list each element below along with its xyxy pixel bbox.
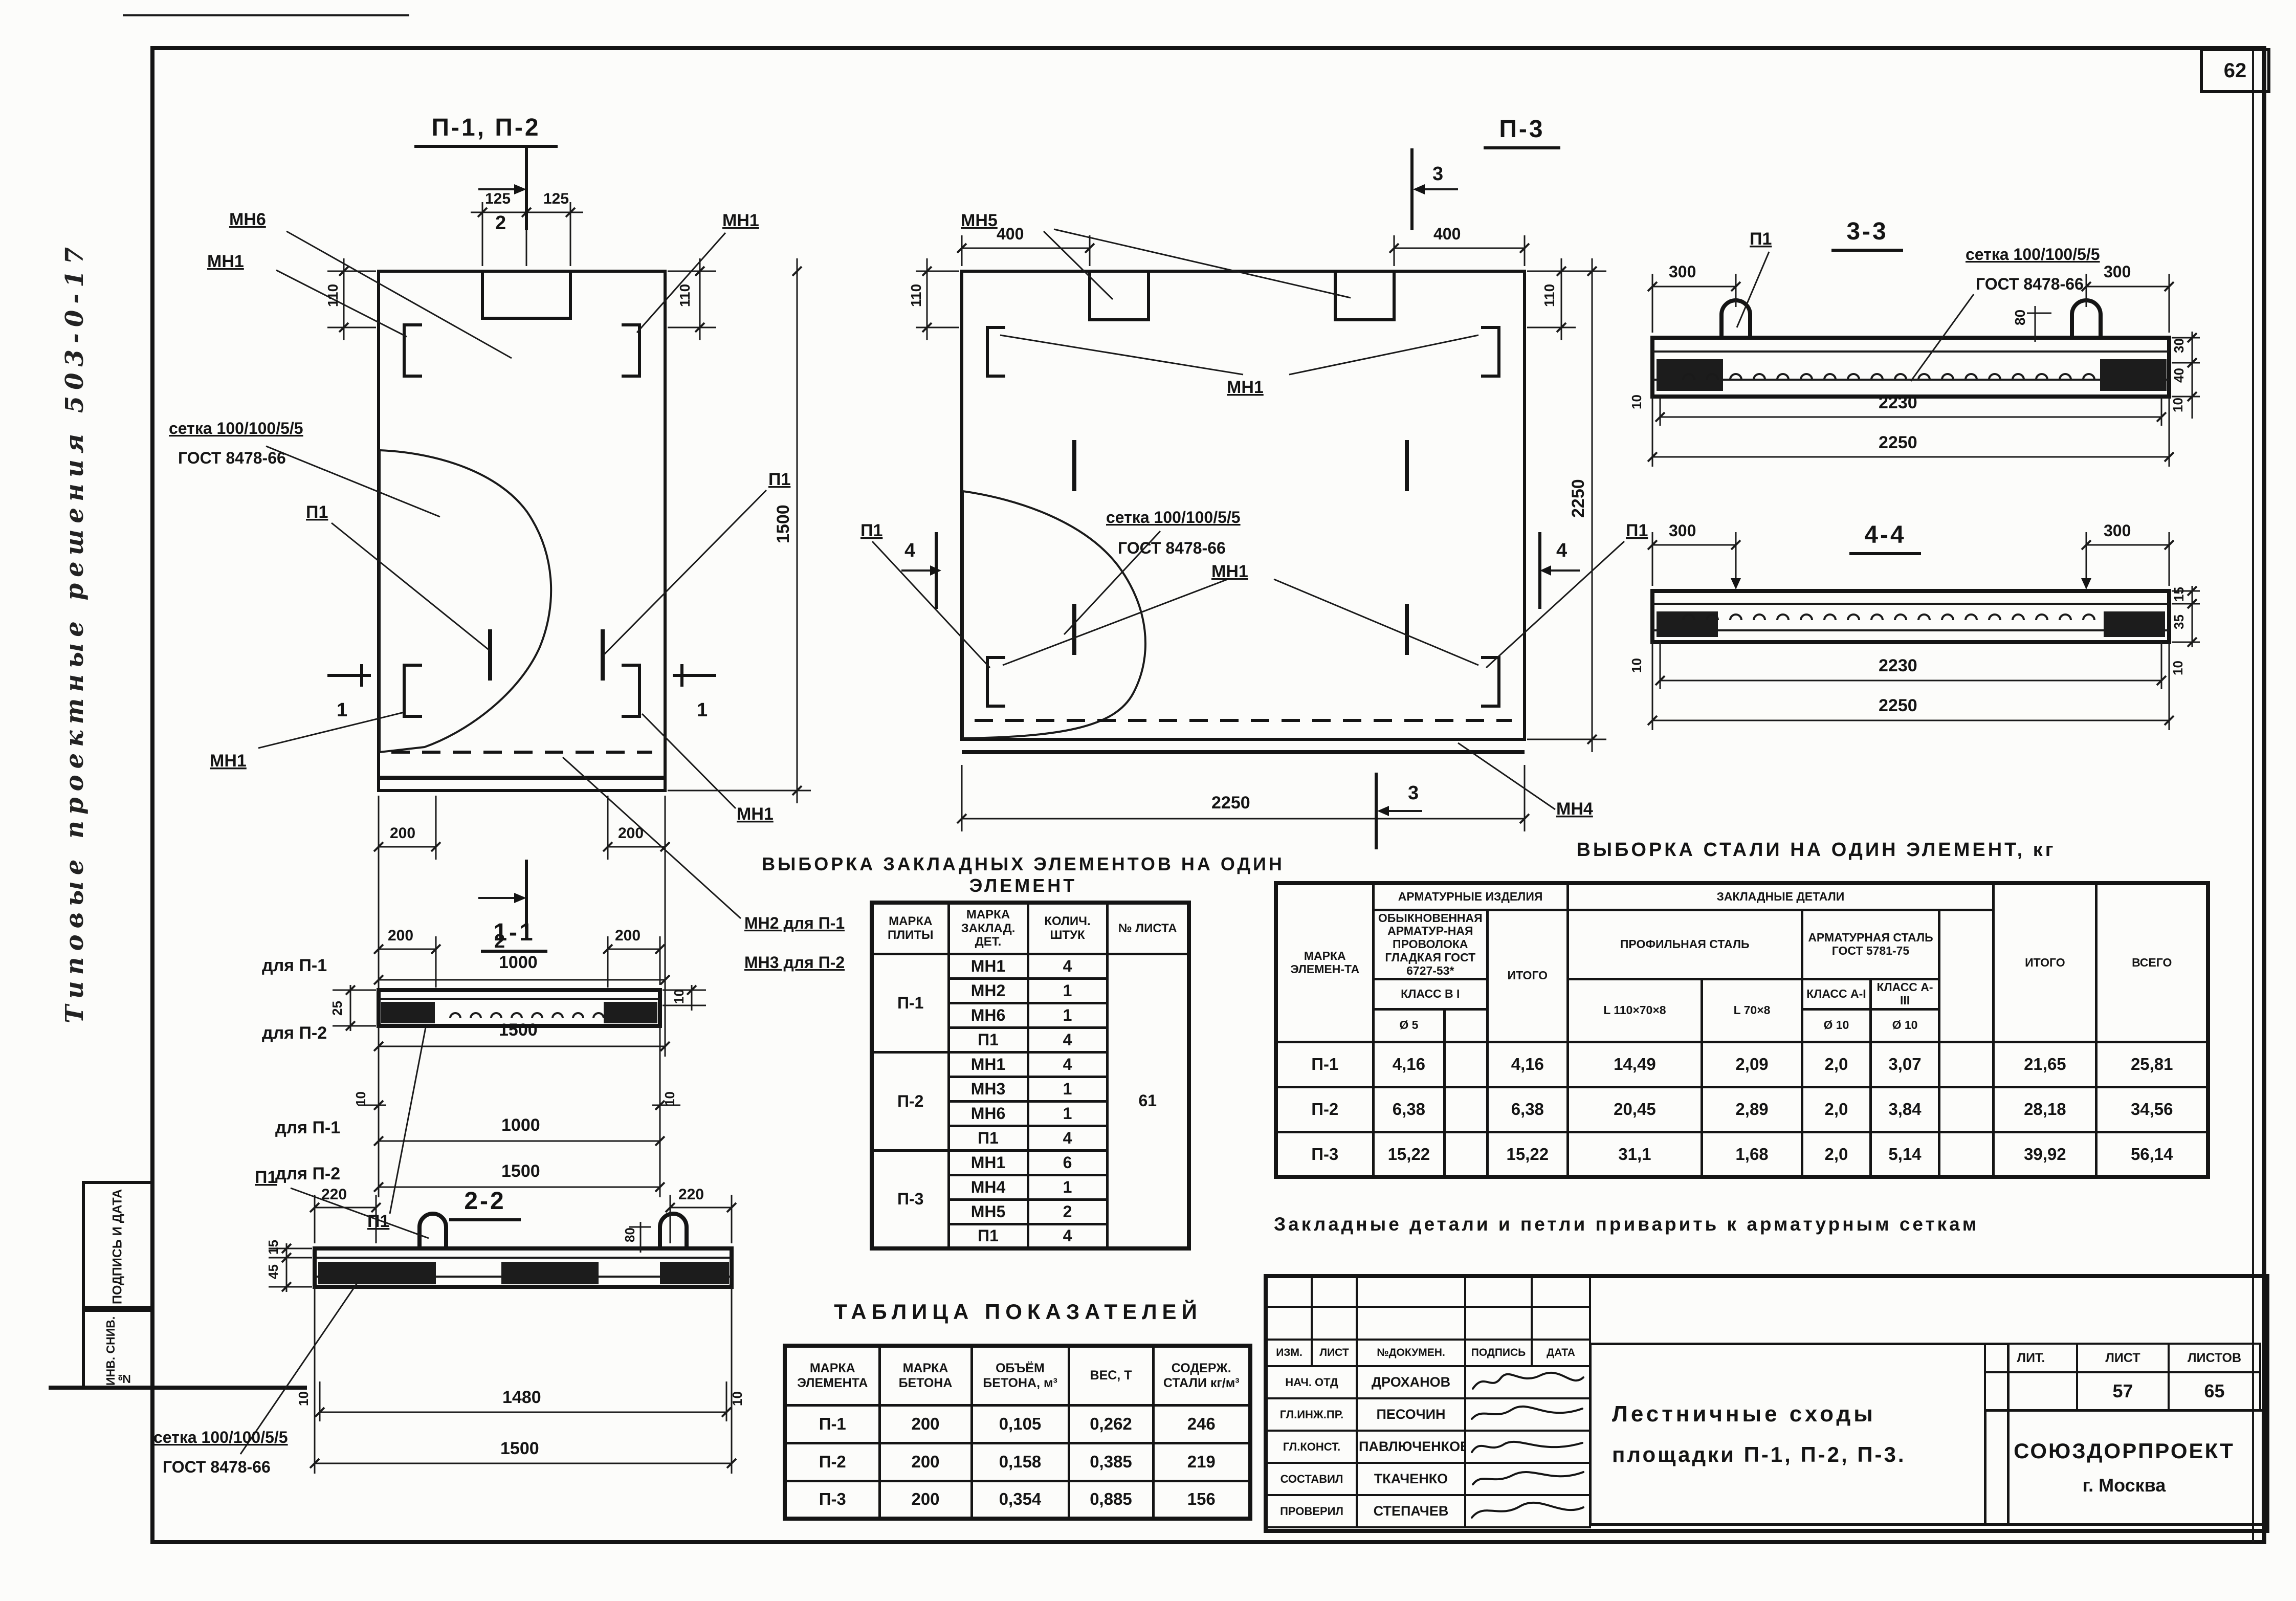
signature: [1469, 1400, 1586, 1426]
svg-text:ГОСТ 8478-66: ГОСТ 8478-66: [178, 449, 286, 467]
sig-role: НАЧ. ОТД: [1267, 1366, 1357, 1398]
svg-text:П1: П1: [768, 470, 790, 489]
svg-text:1500: 1500: [774, 505, 793, 543]
signature: [1469, 1433, 1586, 1458]
svg-text:10: 10: [671, 989, 687, 1004]
steel-h-itogo2: ИТОГО: [1994, 883, 2096, 1042]
pokaz-cell: 0,158: [972, 1443, 1069, 1481]
plan-p3: 400 400 3 3 4 4 110 110 2250 2250 МН5 МН…: [860, 148, 1648, 849]
svg-text:300: 300: [2104, 262, 2131, 281]
steel-cell: 31,1: [1568, 1132, 1702, 1177]
svg-text:10: 10: [2170, 398, 2185, 412]
svg-text:40: 40: [2171, 368, 2187, 383]
page-number-box: 62: [2200, 48, 2270, 93]
pokaz-cell: 0,385: [1069, 1443, 1153, 1481]
zakl-cell: П1: [948, 1027, 1028, 1052]
zakl-cell: 1: [1028, 1175, 1107, 1199]
margin-box-inventory: ИНВ. СНИВ. №: [82, 1306, 153, 1389]
svg-text:1: 1: [697, 699, 708, 721]
pokaz-table: МАРКА ЭЛЕМЕНТА МАРКА БЕТОНА ОБЪЁМ БЕТОНА…: [783, 1344, 1252, 1521]
svg-text:МН2 для П-1: МН2 для П-1: [744, 914, 845, 932]
steel-h-d10a: Ø 10: [1802, 1009, 1870, 1042]
sig-name: ПЕСОЧИН: [1357, 1398, 1465, 1431]
title-plan-p3: П-3: [1484, 115, 1560, 149]
svg-text:для П-1: для П-1: [262, 956, 327, 975]
revision-table: ИЗМ. ЛИСТ №ДОКУМЕН. ПОДПИСЬ ДАТА НАЧ. ОТ…: [1266, 1276, 1591, 1528]
svg-text:МН5: МН5: [961, 211, 998, 230]
pokaz-cell: П-1: [785, 1405, 879, 1443]
svg-text:ГОСТ 8478-66: ГОСТ 8478-66: [163, 1458, 271, 1476]
signature-cell: [1465, 1431, 1590, 1463]
lit-table: ЛИТ. ЛИСТ ЛИСТОВ 57 65: [1984, 1343, 2261, 1411]
svg-text:МН1: МН1: [737, 804, 774, 824]
zakl-cell: МН3: [948, 1077, 1028, 1101]
signature-cell: [1465, 1366, 1590, 1398]
steel-row: П-14,164,1614,492,092,03,0721,6525,81: [1276, 1042, 2208, 1087]
rev-header: ДАТА: [1532, 1340, 1590, 1366]
steel-h-wire: ОБЫКНОВЕННАЯ АРМАТУР-НАЯ ПРОВОЛОКА ГЛАДК…: [1373, 910, 1488, 979]
svg-text:ГОСТ 8478-66: ГОСТ 8478-66: [1976, 275, 2084, 293]
steel-cell: 56,14: [2096, 1132, 2208, 1177]
svg-text:15: 15: [2171, 587, 2187, 602]
svg-text:МН1: МН1: [1211, 562, 1248, 581]
steel-h-L1: L 110×70×8: [1568, 979, 1702, 1042]
steel-cell: 2,0: [1802, 1132, 1870, 1177]
svg-text:П1: П1: [1750, 229, 1772, 249]
zakl-cell: МН4: [948, 1175, 1028, 1199]
steel-cell: 6,38: [1373, 1087, 1445, 1132]
margin-box-inventory-label: ИНВ. СНИВ. №: [85, 1309, 150, 1386]
organization-name: СОЮЗДОРПРОЕКТ: [2014, 1439, 2235, 1463]
steel-cell: 39,92: [1994, 1132, 2096, 1177]
pokaz-cell: 0,105: [972, 1405, 1069, 1443]
pokaz-header: МАРКА БЕТОНА: [879, 1346, 972, 1405]
steel-row: П-315,2215,2231,11,682,05,1439,9256,14: [1276, 1132, 2208, 1177]
svg-text:4: 4: [1556, 540, 1567, 561]
svg-text:П1: П1: [1626, 521, 1648, 540]
svg-text:10: 10: [2170, 661, 2185, 675]
pokaz-row: П-12000,1050,262246: [785, 1405, 1250, 1443]
title-section-3-3: 3-3: [1831, 217, 1903, 252]
steel-cell: 21,65: [1994, 1042, 2096, 1087]
zakl-mark: П-3: [872, 1150, 948, 1248]
steel-h-itogo1: ИТОГО: [1488, 910, 1568, 1042]
zakl-cell: МН1: [948, 954, 1028, 978]
steel-cell: 2,09: [1702, 1042, 1802, 1087]
svg-text:1480: 1480: [502, 1388, 541, 1407]
svg-text:П1: П1: [860, 521, 882, 540]
pokaz-cell: 0,354: [972, 1481, 1069, 1519]
zakl-cell: 4: [1028, 1126, 1107, 1150]
svg-text:10: 10: [662, 1091, 677, 1106]
pokaz-cell: 219: [1153, 1443, 1250, 1481]
lit-label: ЛИТ.: [1985, 1344, 2077, 1372]
zakl-cell: 4: [1028, 1027, 1107, 1052]
zakl-cell: 6: [1028, 1150, 1107, 1175]
listov-label: ЛИСТОВ: [2169, 1344, 2260, 1372]
listov-value: 65: [2169, 1372, 2260, 1410]
svg-text:15: 15: [266, 1240, 281, 1255]
svg-text:200: 200: [388, 927, 413, 944]
pokaz-cell: 246: [1153, 1405, 1250, 1443]
margin-box-signature-label: ПОДПИСЬ И ДАТА: [85, 1184, 150, 1309]
zakl-h-det: МАРКА ЗАКЛАД. ДЕТ.: [948, 903, 1028, 954]
zakl-cell: П1: [948, 1126, 1028, 1150]
title-section-2-2: 2-2: [449, 1187, 521, 1221]
svg-text:200: 200: [615, 927, 641, 944]
svg-text:МН6: МН6: [229, 210, 266, 229]
svg-text:300: 300: [2104, 521, 2131, 540]
svg-text:П1: П1: [255, 1168, 277, 1187]
sig-role: ГЛ.ИНЖ.ПР.: [1267, 1398, 1357, 1431]
pokaz-header: СОДЕРЖ. СТАЛИ кг/м³: [1153, 1346, 1250, 1405]
zakl-h-sheet: № ЛИСТА: [1107, 903, 1189, 954]
zakl-cell: МН6: [948, 1003, 1028, 1027]
sig-name: СТЕПАЧЕВ: [1357, 1495, 1465, 1527]
svg-text:2230: 2230: [1879, 393, 1917, 412]
svg-text:45: 45: [266, 1264, 281, 1279]
svg-text:400: 400: [1433, 225, 1461, 243]
drawing-sheet: 125 125 2 МН6 МН1 МН1 110 110 сетка 100/…: [0, 0, 2296, 1601]
svg-text:1000: 1000: [501, 1115, 540, 1135]
pokaz-cell: 200: [879, 1405, 972, 1443]
steel-cell: П-2: [1276, 1087, 1373, 1132]
svg-text:125: 125: [485, 190, 511, 207]
loop-ticks: [490, 629, 603, 681]
svg-text:30: 30: [2171, 338, 2187, 353]
svg-text:МН4: МН4: [1556, 799, 1593, 819]
steel-cell: 5,14: [1870, 1132, 1939, 1177]
steel-cell: [1939, 1042, 1994, 1087]
svg-text:110: 110: [1541, 284, 1557, 307]
zakl-cell: МН6: [948, 1101, 1028, 1126]
title-section-1-1: 1-1: [481, 918, 547, 953]
title-block: ИЗМ. ЛИСТ №ДОКУМЕН. ПОДПИСЬ ДАТА НАЧ. ОТ…: [1264, 1274, 2269, 1533]
pokaz-cell: 200: [879, 1443, 972, 1481]
svg-text:П1: П1: [367, 1212, 389, 1231]
steel-table: МАРКА ЭЛЕМЕН-ТА АРМАТУРНЫЕ ИЗДЕЛИЯ ЗАКЛА…: [1274, 881, 2210, 1179]
svg-text:2250: 2250: [1211, 793, 1250, 813]
svg-text:10: 10: [730, 1391, 745, 1406]
steel-cell: 2,0: [1802, 1042, 1870, 1087]
steel-cell: П-1: [1276, 1042, 1373, 1087]
svg-text:400: 400: [997, 225, 1024, 243]
zakl-cell: 2: [1028, 1199, 1107, 1224]
zakl-cell: 4: [1028, 1052, 1107, 1077]
zakl-cell: МН5: [948, 1199, 1028, 1224]
svg-text:2230: 2230: [1879, 656, 1917, 675]
zakl-cell: МН2: [948, 978, 1028, 1003]
svg-text:125: 125: [543, 190, 569, 207]
zakl-cell: 4: [1028, 1224, 1107, 1248]
svg-text:2250: 2250: [1569, 479, 1588, 518]
svg-text:1: 1: [337, 699, 347, 721]
svg-text:300: 300: [1669, 262, 1696, 281]
steel-cell: [1445, 1087, 1488, 1132]
steel-h-L2: L 70×8: [1702, 979, 1802, 1042]
pokaz-cell: П-3: [785, 1481, 879, 1519]
steel-h-d10b: Ø 10: [1870, 1009, 1939, 1042]
sig-name: ДРОХАНОВ: [1357, 1366, 1465, 1398]
steel-cell: 4,16: [1373, 1042, 1445, 1087]
steel-h-zakl: ЗАКЛАДНЫЕ ДЕТАЛИ: [1568, 883, 1994, 910]
title-plan-p1-p2: П-1, П-2: [414, 114, 558, 148]
doc-title-line2: площадки П-1, П-2, П-3.: [1612, 1442, 2007, 1467]
steel-cell: [1939, 1132, 1994, 1177]
svg-text:300: 300: [1669, 521, 1696, 540]
zakl-sheet-no: 61: [1107, 954, 1189, 1248]
organization-city: г. Москва: [2083, 1475, 2166, 1496]
organization-cell: СОЮЗДОРПРОЕКТ г. Москва: [1984, 1409, 2264, 1526]
svg-text:25: 25: [329, 1001, 345, 1016]
section-1-1: 200 200 25 10 10 10 для П-1 1000 для П-2…: [275, 927, 706, 1231]
margin-handwritten-note: Типовые проектные решения 503-0-17: [60, 102, 89, 1023]
svg-text:220: 220: [678, 1186, 704, 1203]
svg-text:200: 200: [390, 825, 415, 842]
list-label: ЛИСТ: [2077, 1344, 2169, 1372]
svg-text:200: 200: [618, 825, 644, 842]
list-value: 57: [2077, 1372, 2169, 1410]
steel-h-armstal: АРМАТУРНАЯ СТАЛЬ ГОСТ 5781-75: [1802, 910, 1939, 979]
steel-cell: 3,07: [1870, 1042, 1939, 1087]
zakl-h-mark: МАРКА ПЛИТЫ: [872, 903, 948, 954]
pokaz-header: МАРКА ЭЛЕМЕНТА: [785, 1346, 879, 1405]
zakl-cell: 1: [1028, 1101, 1107, 1126]
steel-cell: 34,56: [2096, 1087, 2208, 1132]
svg-text:для П-1: для П-1: [275, 1118, 340, 1137]
pokaz-cell: П-2: [785, 1443, 879, 1481]
steel-h-vsego: ВСЕГО: [2096, 883, 2208, 1042]
zakl-cell: 1: [1028, 1003, 1107, 1027]
zakl-cell: П1: [948, 1224, 1028, 1248]
steel-cell: 4,16: [1488, 1042, 1568, 1087]
zakl-cell: 1: [1028, 1077, 1107, 1101]
svg-text:3: 3: [1408, 782, 1419, 804]
steel-cell: 28,18: [1994, 1087, 2096, 1132]
svg-text:для П-2: для П-2: [262, 1023, 327, 1043]
pokaz-header: ОБЪЁМ БЕТОНА, м³: [972, 1346, 1069, 1405]
svg-text:1000: 1000: [499, 953, 538, 972]
steel-cell: 14,49: [1568, 1042, 1702, 1087]
steel-cell: [1445, 1042, 1488, 1087]
svg-text:1500: 1500: [501, 1161, 540, 1181]
sig-name: ТКАЧЕНКО: [1357, 1463, 1465, 1495]
svg-text:10: 10: [296, 1391, 311, 1406]
lit-value: [1985, 1372, 2077, 1410]
svg-text:1500: 1500: [499, 1020, 538, 1040]
svg-text:220: 220: [321, 1186, 347, 1203]
steel-h-classB: КЛАСС В I: [1373, 979, 1488, 1010]
section-3-3: 300 300 80 30 40 10 10 2230 2250 П1 сетк…: [1629, 229, 2200, 467]
pokaz-header: ВЕС, Т: [1069, 1346, 1153, 1405]
zakl-table: МАРКА ПЛИТЫ МАРКА ЗАКЛАД. ДЕТ. КОЛИЧ. ШТ…: [870, 901, 1191, 1251]
steel-cell: 1,68: [1702, 1132, 1802, 1177]
svg-text:МН1: МН1: [207, 252, 244, 271]
svg-text:10: 10: [353, 1091, 368, 1106]
steel-h-arm: АРМАТУРНЫЕ ИЗДЕЛИЯ: [1373, 883, 1568, 910]
svg-text:для П-2: для П-2: [275, 1164, 340, 1183]
rev-header: №ДОКУМЕН.: [1357, 1340, 1465, 1366]
svg-text:сетка 100/100/5/5: сетка 100/100/5/5: [1106, 508, 1241, 527]
sig-role: ГЛ.КОНСТ.: [1267, 1431, 1357, 1463]
svg-text:110: 110: [325, 284, 341, 307]
signature: [1469, 1465, 1586, 1490]
doc-title-line1: Лестничные сходы: [1612, 1401, 2007, 1427]
doc-title-cell: Лестничные сходы площадки П-1, П-2, П-3.: [1589, 1343, 2010, 1526]
steel-cell: [1445, 1132, 1488, 1177]
zakl-h-qty: КОЛИЧ. ШТУК: [1028, 903, 1107, 954]
svg-text:80: 80: [622, 1227, 637, 1242]
svg-text:сетка 100/100/5/5: сетка 100/100/5/5: [1966, 245, 2100, 264]
signature: [1469, 1368, 1586, 1394]
svg-text:МН3 для П-2: МН3 для П-2: [744, 953, 845, 972]
steel-cell: 15,22: [1488, 1132, 1568, 1177]
steel-h-blank: [1939, 910, 1994, 1042]
pokaz-table-title: ТАБЛИЦА ПОКАЗАТЕЛЕЙ: [788, 1300, 1248, 1324]
zakl-cell: МН1: [948, 1150, 1028, 1175]
steel-h-classA1: КЛАСС А-I: [1802, 979, 1870, 1010]
steel-h-d5: Ø 5: [1373, 1009, 1445, 1042]
rev-header: ПОДПИСЬ: [1465, 1340, 1532, 1366]
steel-cell: 2,89: [1702, 1087, 1802, 1132]
pokaz-cell: 0,262: [1069, 1405, 1153, 1443]
rev-header: ИЗМ.: [1267, 1340, 1312, 1366]
svg-text:10: 10: [1629, 658, 1644, 673]
svg-text:3: 3: [1432, 163, 1443, 185]
svg-text:МН1: МН1: [210, 751, 247, 771]
steel-h-mark: МАРКА ЭЛЕМЕН-ТА: [1276, 883, 1373, 1042]
margin-box-signature: ПОДПИСЬ И ДАТА: [82, 1181, 153, 1312]
steel-h-prof: ПРОФИЛЬНАЯ СТАЛЬ: [1568, 910, 1802, 979]
svg-text:35: 35: [2171, 615, 2187, 629]
signature: [1469, 1497, 1586, 1523]
zakl-mark: П-1: [872, 954, 948, 1052]
zakl-cell: 1: [1028, 978, 1107, 1003]
title-section-4-4: 4-4: [1849, 521, 1921, 555]
svg-text:сетка 100/100/5/5: сетка 100/100/5/5: [153, 1428, 288, 1446]
zakl-mark: П-2: [872, 1052, 948, 1150]
rev-header: ЛИСТ: [1312, 1340, 1357, 1366]
svg-text:110: 110: [908, 284, 924, 307]
steel-cell: 25,81: [2096, 1042, 2208, 1087]
svg-text:110: 110: [677, 284, 693, 307]
welding-note: Закладные детали и петли приварить к арм…: [1274, 1214, 2256, 1235]
steel-cell: 6,38: [1488, 1087, 1568, 1132]
pokaz-cell: 156: [1153, 1481, 1250, 1519]
page-number: 62: [2224, 59, 2247, 82]
sig-name: ПАВЛЮЧЕНКОВ: [1357, 1431, 1465, 1463]
svg-text:ГОСТ 8478-66: ГОСТ 8478-66: [1118, 539, 1226, 557]
svg-text:10: 10: [1629, 394, 1644, 409]
signature-cell: [1465, 1495, 1590, 1527]
signature-cell: [1465, 1463, 1590, 1495]
steel-table-title: ВЫБОРКА СТАЛИ НА ОДИН ЭЛЕМЕНТ, кг: [1509, 839, 2123, 861]
svg-text:МН1: МН1: [722, 211, 759, 230]
pokaz-row: П-22000,1580,385219: [785, 1443, 1250, 1481]
zakl-cell: МН1: [948, 1052, 1028, 1077]
steel-cell: 15,22: [1373, 1132, 1445, 1177]
svg-text:2250: 2250: [1879, 433, 1917, 452]
sig-role: ПРОВЕРИЛ: [1267, 1495, 1357, 1527]
zakl-cell: 4: [1028, 954, 1107, 978]
steel-h-classA3: КЛАСС А-III: [1870, 979, 1939, 1010]
svg-text:П1: П1: [306, 502, 328, 522]
svg-text:1500: 1500: [500, 1439, 539, 1458]
sig-role: СОСТАВИЛ: [1267, 1463, 1357, 1495]
steel-cell: 3,84: [1870, 1087, 1939, 1132]
pokaz-cell: 0,885: [1069, 1481, 1153, 1519]
svg-text:2: 2: [495, 212, 506, 234]
svg-text:80: 80: [2012, 310, 2028, 325]
pokaz-cell: 200: [879, 1481, 972, 1519]
svg-text:4: 4: [904, 540, 915, 561]
steel-row: П-26,386,3820,452,892,03,8428,1834,56: [1276, 1087, 2208, 1132]
steel-h-blank2: [1445, 1009, 1488, 1042]
steel-cell: П-3: [1276, 1132, 1373, 1177]
svg-text:МН1: МН1: [1227, 378, 1264, 397]
steel-cell: 20,45: [1568, 1087, 1702, 1132]
pokaz-row: П-32000,3540,885156: [785, 1481, 1250, 1519]
lifting-loops: [1721, 300, 2101, 338]
zakl-table-title: ВЫБОРКА ЗАКЛАДНЫХ ЭЛЕМЕНТОВ НА ОДИН ЭЛЕМ…: [737, 853, 1310, 896]
signature-cell: [1465, 1398, 1590, 1431]
svg-text:сетка 100/100/5/5: сетка 100/100/5/5: [169, 419, 303, 437]
steel-cell: [1939, 1087, 1994, 1132]
steel-cell: 2,0: [1802, 1087, 1870, 1132]
svg-text:2250: 2250: [1879, 696, 1917, 715]
